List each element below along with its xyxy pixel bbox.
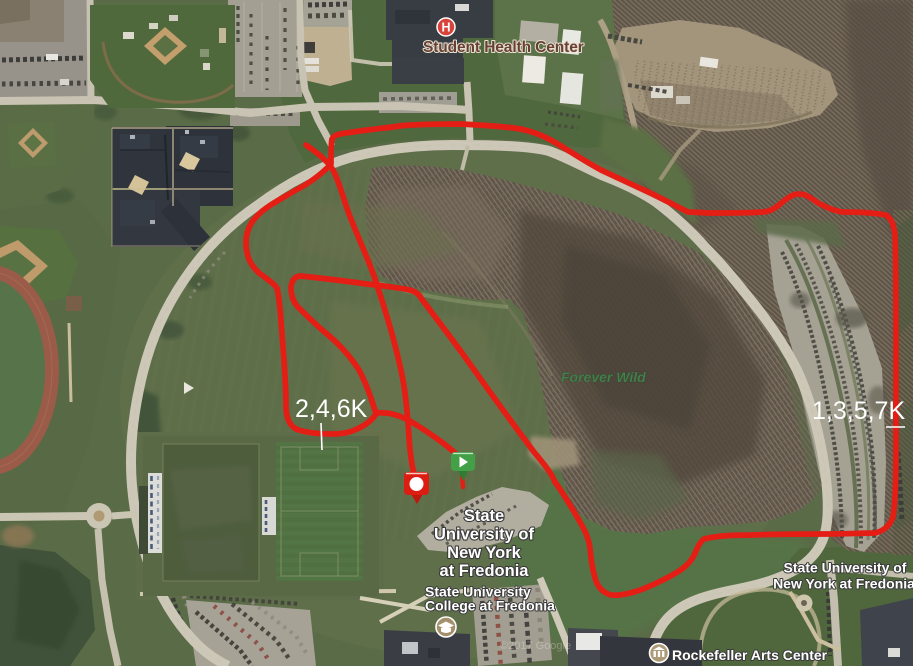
svg-text:at Fredonia: at Fredonia — [440, 562, 530, 580]
svg-text:State University of: State University of — [784, 560, 907, 576]
svg-text:2,4,6K: 2,4,6K — [295, 395, 368, 423]
svg-text:New York at Fredonia: New York at Fredonia — [773, 576, 913, 592]
svg-text:College at Fredonia: College at Fredonia — [425, 598, 555, 614]
svg-text:New York: New York — [447, 544, 521, 562]
svg-text:Forever Wild: Forever Wild — [561, 369, 646, 385]
svg-text:Rockefeller Arts Center: Rockefeller Arts Center — [672, 647, 828, 663]
svg-text:University of: University of — [434, 526, 534, 544]
svg-text:H: H — [441, 21, 450, 35]
svg-text:Student Health Center: Student Health Center — [423, 39, 584, 56]
svg-text:State: State — [464, 507, 504, 525]
svg-text:1,3,5,7K: 1,3,5,7K — [812, 397, 905, 425]
svg-text:©2017 Google: ©2017 Google — [500, 640, 571, 652]
